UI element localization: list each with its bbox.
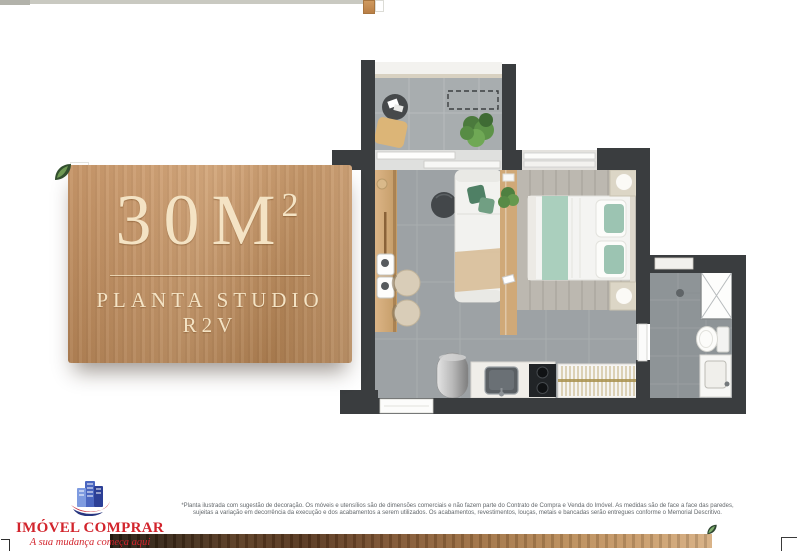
bottom-wood-bar [110, 534, 712, 548]
buildings-logo-icon [67, 479, 113, 516]
panel-divider [110, 275, 310, 276]
bar-stool [394, 300, 420, 326]
bed-accent-pillow [604, 245, 624, 274]
sofa-pillow [478, 197, 495, 214]
area-superscript: 2 [282, 187, 299, 224]
page: 30M2 PLANTA STUDIO R2V IMÓVEL COMPRAR A … [0, 0, 797, 551]
disclaimer-line-1: *Planta ilustrada com sugestão de decora… [145, 503, 770, 510]
top-white-square [375, 0, 384, 12]
left-wall [361, 150, 375, 412]
lamp [616, 174, 633, 191]
area-label: 30M2 [68, 181, 352, 273]
shower-head [676, 289, 684, 297]
leaf-icon [52, 161, 74, 183]
disclaimer: *Planta ilustrada com sugestão de decora… [145, 503, 770, 517]
sofa-throw [455, 248, 502, 292]
toilet-tank [717, 327, 729, 352]
brand-tagline: A sua mudança começa aqui [12, 537, 168, 549]
burner [537, 367, 548, 378]
bathroom-right-wall [732, 255, 746, 413]
sink-faucet [499, 392, 504, 397]
sideboard-books [503, 174, 514, 181]
bedroom-right-wall [636, 148, 650, 324]
bed-accent-pillow [604, 204, 624, 233]
disclaimer-line-2: sujeitas a variação em decorrência da ex… [145, 510, 770, 517]
headboard [630, 194, 635, 282]
bathroom-door [638, 324, 647, 361]
brand-name: IMÓVEL COMPRAR [12, 521, 168, 536]
area-panel: 30M2 PLANTA STUDIO R2V [68, 165, 352, 363]
bathroom-window [655, 258, 693, 269]
vanity-faucet [725, 382, 730, 387]
lamp [616, 288, 633, 305]
top-strip [0, 0, 363, 4]
crop-mark-bottom-right [781, 537, 797, 551]
burner [537, 383, 548, 394]
bed-green-runner [542, 196, 568, 280]
top-wood-square [363, 0, 375, 14]
bar-stool [394, 270, 420, 296]
plan-name-label: PLANTA STUDIO R2V [68, 288, 352, 338]
leaf-icon [705, 523, 719, 536]
coffee-table [431, 192, 457, 218]
crop-mark-bottom-left [1, 539, 10, 551]
top-strip-cap [0, 0, 30, 5]
vanity-basin [705, 361, 726, 388]
counter-sconce [377, 179, 387, 189]
balcony-glass-rail [375, 62, 502, 75]
